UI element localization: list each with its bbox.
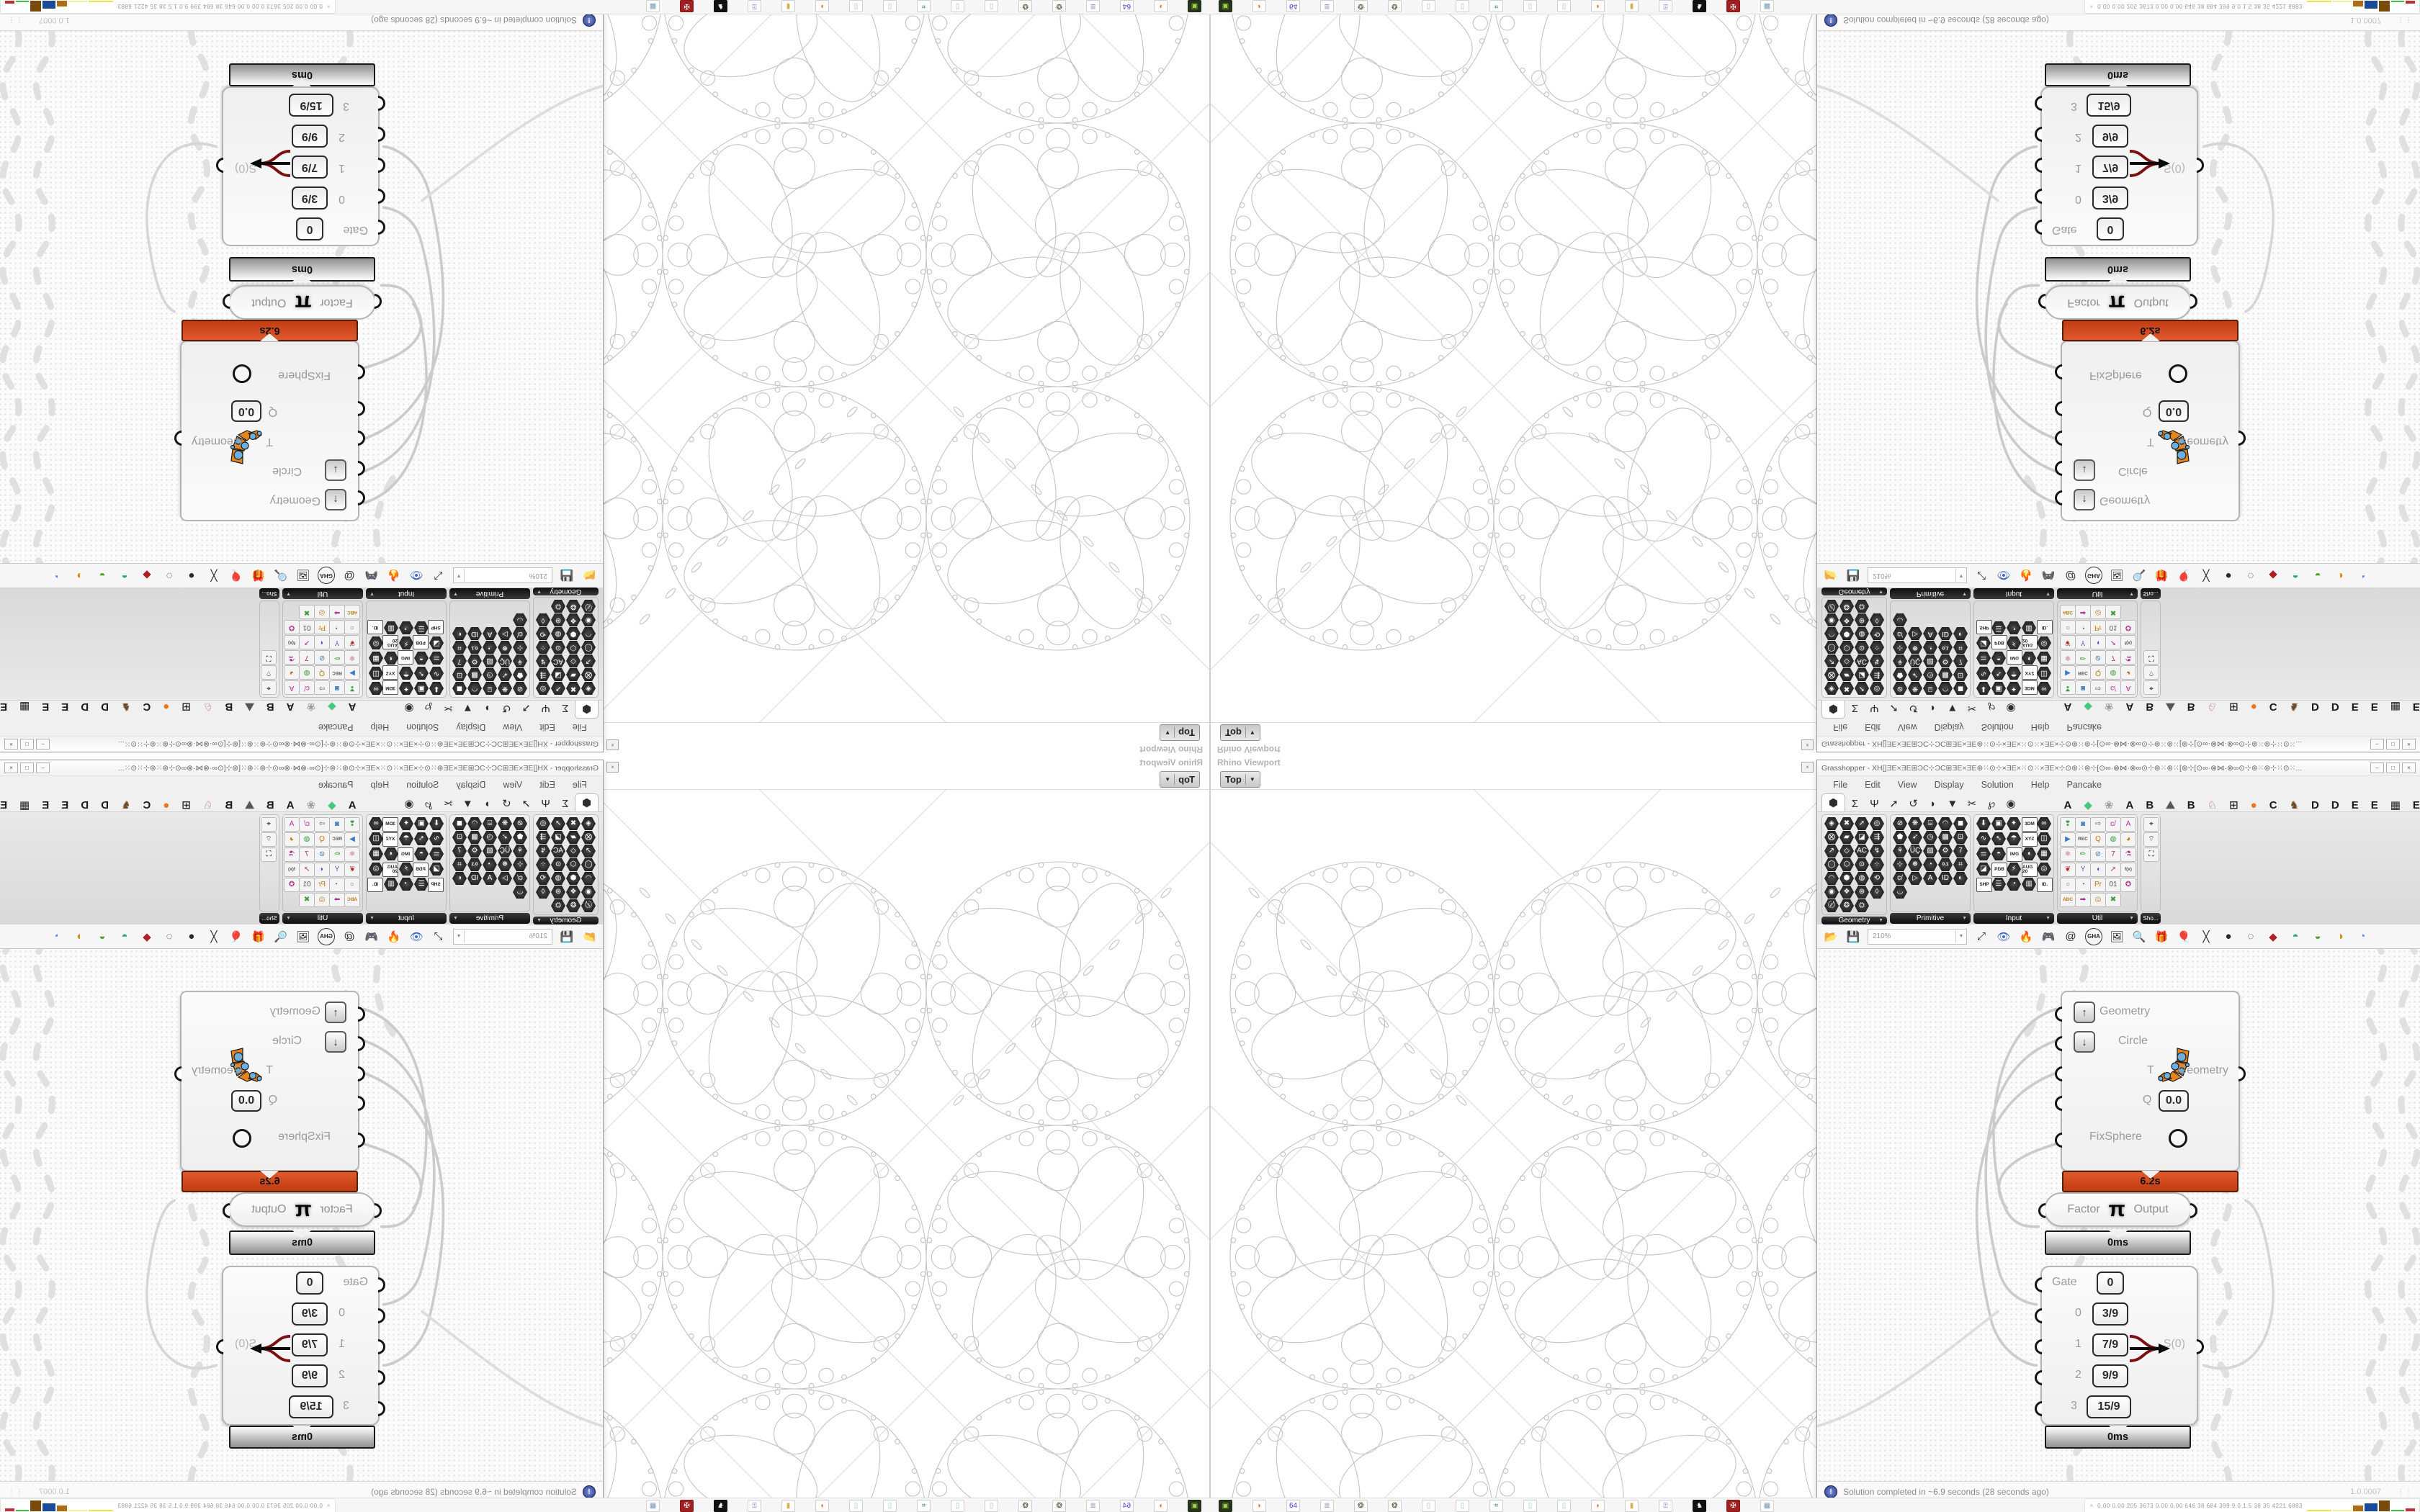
taskbar-document-icon[interactable]: ≣ — [1086, 1, 1100, 13]
category-tab[interactable]: B — [2146, 799, 2154, 811]
palette-icon[interactable]: ⌖ — [261, 680, 277, 695]
category-tab[interactable]: E — [42, 701, 49, 714]
frame-view-icon[interactable]: 🖼 — [2109, 929, 2125, 945]
menubar[interactable]: FileEditViewDisplaySolutionHelpPancake — [1817, 719, 2420, 736]
menu-item-pancake[interactable]: Pancake — [2066, 780, 2102, 790]
taskbar-bw-app-icon[interactable]: ♞ — [714, 1, 727, 13]
menu-item-solution[interactable]: Solution — [1981, 780, 2014, 790]
taskbar-floppy-64-icon[interactable]: 64 — [1120, 1, 1134, 13]
taskbar-monitor-icon[interactable]: ⌗ — [1489, 1, 1503, 13]
palette-icon[interactable]: ▷ — [1908, 627, 1922, 640]
category-tab[interactable]: ◆ — [328, 701, 336, 714]
palette-icon[interactable]: 〄 — [581, 600, 596, 613]
palette-icon[interactable]: ⚘ — [513, 654, 527, 667]
category-tab-icon[interactable]: ℘ — [1981, 701, 2001, 716]
category-tabbar[interactable]: ⬢ΣΨ➚↺◗▼✂℘◉A◆❀AB⛰B♘⊞●C♞DDEE▦E — [1817, 793, 2420, 811]
palette-icon[interactable]: ⚗ — [284, 847, 300, 862]
palette-icon[interactable]: ID. — [2037, 878, 2053, 892]
taskbar-red-badge-icon[interactable]: ✠ — [1726, 1, 1740, 13]
palette-icon[interactable]: A — [2120, 680, 2136, 695]
taskbar-floppy-64-icon[interactable]: 64 — [1286, 1500, 1300, 1512]
category-tab[interactable]: ▦ — [2390, 798, 2401, 811]
palette-icon[interactable]: ◎ — [2090, 893, 2106, 907]
palette-icon[interactable]: ▶ — [344, 665, 360, 680]
chevron-down-icon[interactable]: ▼ — [2045, 591, 2051, 596]
input-grip[interactable] — [2055, 431, 2070, 446]
palette-icon[interactable]: 7 — [1953, 845, 1968, 858]
menu-item-help[interactable]: Help — [2031, 780, 2050, 790]
palette-icon[interactable]: ➴ — [414, 832, 429, 845]
input-grip[interactable] — [350, 1036, 365, 1051]
palette-icon[interactable]: ◼ — [452, 682, 467, 695]
pi-component[interactable]: Factor π Output — [228, 1192, 376, 1227]
category-tab[interactable]: C — [143, 799, 151, 811]
menu-item-display[interactable]: Display — [456, 723, 485, 733]
taskbar-notepad-icon[interactable]: ▯ — [1523, 1, 1537, 13]
category-tab-icon[interactable]: Ψ — [536, 796, 555, 811]
save-floppy-icon[interactable]: 💾 — [559, 568, 575, 584]
palette-icon[interactable]: ⛶ — [2143, 847, 2159, 862]
palette-icon[interactable]: ⚛ — [344, 847, 360, 862]
palette-icon[interactable]: ▦ — [369, 652, 383, 665]
palette-icon[interactable]: ○ — [344, 620, 360, 634]
input-grip[interactable] — [2055, 1066, 2070, 1081]
category-tab-icon[interactable]: ➚ — [1884, 701, 1904, 716]
input-grip[interactable] — [2055, 1036, 2070, 1051]
palette-icon[interactable]: ◍ — [2105, 832, 2121, 847]
palette-icon[interactable]: ∞ — [369, 817, 383, 830]
palette-icon[interactable]: ⛭ — [551, 899, 565, 912]
palette-icon[interactable]: ⬡ — [566, 858, 581, 871]
palette-icon[interactable]: c/ — [2105, 817, 2121, 832]
palette-icon[interactable]: ◫ — [2037, 832, 2051, 845]
palette-icon[interactable]: SHP — [428, 620, 444, 634]
palette-icon[interactable]: ⚛ — [2060, 847, 2076, 862]
zoom-extents-icon[interactable]: ⤢ — [1973, 568, 1989, 584]
palette-icon[interactable]: ✪ — [2120, 620, 2136, 634]
maximize-button[interactable]: □ — [2386, 739, 2400, 750]
input-grip[interactable] — [2055, 461, 2070, 476]
input-grip[interactable] — [350, 1007, 365, 1022]
palette-icon[interactable]: ⬇ — [429, 817, 444, 830]
category-tab[interactable]: B — [266, 799, 274, 811]
minimize-button[interactable]: – — [2370, 739, 2384, 750]
lamp-icon[interactable]: 🎮 — [364, 568, 380, 584]
palette-icon[interactable]: ↗ — [1824, 845, 1839, 858]
palette-icon[interactable]: ◡ — [1893, 886, 1907, 899]
palette-icon[interactable]: 7 — [2105, 847, 2121, 862]
frame-view-icon[interactable]: 🖼 — [2109, 568, 2125, 584]
blob-orange-icon[interactable]: ◑ — [72, 568, 88, 584]
category-tab-icon[interactable]: ↺ — [1904, 701, 1923, 716]
chevron-down-icon[interactable]: ▼ — [369, 591, 375, 596]
palette-icon[interactable]: ⊹ — [1893, 858, 1907, 871]
taskbar-notepad-icon[interactable]: ▯ — [1557, 1, 1571, 13]
taskbar-tray[interactable]: ˄ 0.00 0.00 205 3673 0.00 0.00 646 38 68… — [0, 1498, 336, 1512]
taskbar-notepad-icon[interactable]: ▯ — [951, 1500, 964, 1512]
palette-icon[interactable]: ❅ — [1908, 641, 1922, 654]
input-grip[interactable] — [2035, 1308, 2050, 1323]
category-tab[interactable]: B — [2187, 799, 2195, 811]
output-grip[interactable] — [223, 1203, 238, 1218]
palette-icon[interactable]: 0.1 — [1938, 641, 1953, 654]
arrow-down-button[interactable]: ↓ — [2074, 459, 2095, 481]
palette-icon[interactable]: ◇ — [566, 845, 581, 858]
category-tab-icon[interactable]: ➚ — [516, 701, 536, 716]
palette-icon[interactable]: ❖ — [566, 613, 581, 626]
zoom-level-select[interactable]: 210%▼ — [1868, 929, 1967, 945]
input-grip[interactable] — [2055, 1007, 2070, 1022]
palette-icon[interactable]: ⌖ — [2143, 680, 2159, 695]
palette-icon[interactable]: ❋ — [498, 817, 512, 830]
palette-icon[interactable]: 0.1 — [467, 641, 482, 654]
taskbar[interactable]: ▣◗64≣❂❂▯▯⌗▯▯◗▮⍐♞✠▦ ˄ 0.00 0.00 205 3673 … — [1210, 0, 2420, 14]
taskbar-calculator-icon[interactable]: ▦ — [646, 1, 660, 13]
palette-icon[interactable]: ⊘ — [513, 682, 527, 695]
taskbar-terminal-icon[interactable]: ▣ — [1188, 1, 1201, 13]
fixsphere-toggle[interactable] — [2169, 1129, 2187, 1148]
arrow-down-button[interactable]: ↓ — [325, 1031, 346, 1053]
taskbar-terminal-icon[interactable]: ▣ — [1219, 1500, 1232, 1512]
grasshopper-window[interactable]: Grasshopper - XH[]ƎE×ƎE⊞ƆC⊹ƆC⊞ƎE×ƎE⊛⁙⊙⊹×… — [1816, 9, 2420, 752]
palette-icon[interactable]: ◙ — [2075, 817, 2091, 832]
palette-icon[interactable]: ◊ — [536, 886, 550, 899]
palette-icon[interactable]: ⚙ — [467, 654, 482, 667]
grasshopper-titlebar[interactable]: Grasshopper - XH[]ƎE×ƎE⊞ƆC⊹ƆC⊞ƎE×ƎE⊛⁙⊙⊹×… — [0, 736, 603, 752]
palette-icon[interactable]: ▥ — [384, 878, 398, 891]
palette-icon[interactable]: ⌸ — [1923, 817, 1937, 830]
chevron-down-icon[interactable]: ▼ — [1955, 570, 1966, 582]
palette-icon[interactable]: ❦ — [344, 635, 360, 649]
palette-icon[interactable]: ⚗ — [2120, 650, 2136, 665]
output-grip[interactable] — [216, 158, 231, 173]
palette-icon[interactable]: ⚌ — [1976, 652, 1991, 665]
taskbar-firefox-icon[interactable]: ◗ — [815, 1500, 829, 1512]
taskbar-monitor-icon[interactable]: ⌗ — [917, 1500, 931, 1512]
palette-icon[interactable]: ⨂ — [581, 668, 596, 681]
category-tab-icon[interactable]: Ψ — [1865, 701, 1884, 716]
palette-icon[interactable]: ▥ — [2022, 621, 2036, 634]
input-grip[interactable] — [2035, 127, 2050, 142]
palette-icon[interactable]: ◖ — [384, 847, 398, 860]
palette-icon[interactable]: ❦ — [344, 863, 360, 877]
palette-icon[interactable]: ⊘ — [2090, 650, 2106, 665]
paint-flame-icon[interactable]: 🔥 — [2018, 568, 2034, 584]
palette-icon[interactable]: ◐ — [1953, 627, 1968, 640]
taskbar-dark-orb-icon[interactable]: ❂ — [1388, 1, 1402, 13]
palette-icon[interactable]: ⬡ — [1839, 858, 1854, 871]
palette-icon[interactable]: ◖ — [314, 635, 330, 649]
value-box[interactable]: 15/9 — [289, 94, 333, 117]
output-grip[interactable] — [174, 1066, 189, 1081]
palette-icon[interactable]: AUG 20 — [382, 635, 398, 649]
input-grip[interactable] — [350, 461, 365, 476]
component-palette[interactable]: ◈✖➚◎⨂▰◪⇶↗◇AC↯◯⬡⊙⁘◠⬢◍⟲◉❖⊛◊〄❂⛭Geometry▼⊘❋⌸… — [0, 811, 603, 924]
value-box[interactable]: 9/9 — [292, 125, 328, 148]
chevron-down-icon[interactable]: ▼ — [1165, 776, 1170, 783]
palette-icon[interactable]: ✖ — [566, 817, 581, 830]
palette-icon[interactable]: ⬢ — [1839, 627, 1854, 640]
palette-icon[interactable]: ◐ — [452, 872, 467, 885]
close-button[interactable]: × — [2402, 739, 2416, 750]
tray-expand-icon[interactable]: ˄ — [2089, 1503, 2093, 1508]
palette-icon[interactable]: ◪ — [429, 863, 444, 876]
palette-icon[interactable]: ↯ — [1870, 845, 1884, 858]
palette-icon[interactable]: ❋ — [1908, 817, 1922, 830]
menu-item-file[interactable]: File — [1833, 723, 1847, 733]
taskbar-monitor-icon[interactable]: ⌗ — [1489, 1500, 1503, 1512]
search-s-icon[interactable]: 🔍 — [273, 568, 289, 584]
palette-icon[interactable]: ❋ — [498, 682, 512, 695]
palette-icon[interactable]: ▨ — [483, 845, 497, 858]
save-floppy-icon[interactable]: 💾 — [1845, 568, 1861, 584]
open-folder-icon[interactable]: 📂 — [1823, 568, 1839, 584]
palette-icon[interactable]: ▶ — [2060, 832, 2076, 847]
palette-icon[interactable]: ✦ — [399, 682, 413, 695]
palette-icon[interactable]: ∿ — [429, 832, 444, 845]
palette-group-label[interactable]: Geometry▼ — [1821, 917, 1887, 924]
palette-icon[interactable]: ⚗ — [2120, 847, 2136, 862]
close-button[interactable]: × — [4, 739, 18, 750]
category-tab-icon[interactable]: Σ — [555, 796, 575, 811]
palette-icon[interactable]: ✦ — [2007, 817, 2021, 830]
menu-item-edit[interactable]: Edit — [1865, 723, 1881, 733]
palette-icon[interactable]: ID — [467, 627, 482, 640]
arrow-up-button[interactable]: ↑ — [325, 489, 346, 510]
palette-icon[interactable]: Y — [2075, 635, 2091, 649]
palette-icon[interactable]: ◠ — [467, 682, 482, 695]
arrow-down-button[interactable]: ↓ — [2074, 1031, 2095, 1053]
taskbar-firefox-icon[interactable]: ◗ — [1154, 1, 1168, 13]
palette-icon[interactable]: ◔ — [2007, 878, 2021, 891]
palette-icon[interactable]: ▩ — [467, 668, 482, 681]
palette-icon[interactable]: ▰ — [1839, 668, 1854, 681]
palette-icon[interactable]: ÜÇ — [1908, 654, 1922, 667]
palette-icon[interactable]: A — [284, 680, 300, 695]
palette-group-label[interactable]: Primitive▼ — [1890, 588, 1971, 599]
taskbar-firefox-icon[interactable]: ◗ — [815, 1, 829, 13]
chevron-down-icon[interactable]: ▼ — [453, 591, 458, 596]
category-tab[interactable]: ❀ — [307, 798, 316, 811]
palette-icon[interactable]: ❅ — [498, 641, 512, 654]
palette-icon[interactable]: ⁘ — [536, 858, 550, 871]
palette-icon[interactable]: ➡ — [2075, 893, 2091, 907]
palette-icon[interactable]: ⁘ — [1870, 858, 1884, 871]
palette-icon[interactable]: ◠ — [467, 817, 482, 830]
palette-icon[interactable]: IMG — [398, 847, 413, 862]
taskbar-floppy-64-icon[interactable]: 64 — [1286, 1, 1300, 13]
palette-icon[interactable]: ⬢ — [1839, 872, 1854, 885]
palette-icon[interactable]: ◪ — [1976, 863, 1991, 876]
palette-icon[interactable]: ✪ — [284, 878, 300, 892]
blob-teal-icon[interactable]: ◓ — [2287, 568, 2303, 584]
palette-icon[interactable]: ÜÇ — [498, 845, 512, 858]
pi-component[interactable]: Factor π Output — [228, 285, 376, 320]
palette-group-label[interactable]: Geometry▼ — [533, 917, 599, 924]
palette-icon[interactable]: ▩ — [1938, 831, 1953, 844]
palette-icon[interactable]: ❂ — [1839, 899, 1854, 912]
palette-icon[interactable]: AUG 20 — [2022, 635, 2038, 649]
canvas[interactable]: ↑ ↓ Geometry Circle T Q FixSphere 0.0 — [1817, 31, 2420, 563]
palette-icon[interactable]: 3DM — [2022, 680, 2038, 695]
palette-icon[interactable]: f(x) — [2120, 635, 2136, 649]
paint-flame-icon[interactable]: 🔥 — [386, 929, 402, 945]
palette-icon[interactable]: ✏ — [2075, 847, 2091, 862]
category-tab-icon[interactable]: Ψ — [1865, 796, 1884, 811]
category-tab-icon[interactable]: Σ — [555, 701, 575, 716]
taskbar-notepad-icon[interactable]: ▯ — [883, 1500, 897, 1512]
taskbar-computer-icon[interactable]: ⍐ — [1659, 1, 1672, 13]
category-tab[interactable]: ● — [2251, 701, 2257, 714]
taskbar-tray[interactable]: ˄ 0.00 0.00 205 3673 0.00 0.00 646 38 68… — [2084, 0, 2420, 14]
palette-icon[interactable]: ◔ — [2075, 878, 2091, 892]
palette-icon[interactable]: ◼ — [1953, 682, 1968, 695]
palette-icon[interactable]: ∿ — [1976, 667, 1991, 680]
palette-icon[interactable]: ➶ — [1908, 668, 1922, 681]
palette-icon[interactable]: ☂ — [2007, 667, 2021, 680]
palette-icon[interactable]: ⊹ — [513, 641, 527, 654]
maximize-button[interactable]: □ — [20, 739, 34, 750]
menu-item-pancake[interactable]: Pancake — [2066, 723, 2102, 733]
canvas-toolbar[interactable]: 📂💾210%▼⤢👁🔥🎮@GHA🖼🔍🎁🎈╳●◌◆◓◒◑◔ — [0, 924, 603, 949]
category-tab[interactable]: E — [2371, 799, 2378, 811]
palette-icon[interactable]: A — [1923, 627, 1937, 640]
palette-icon[interactable]: ◈ — [1824, 817, 1839, 830]
palette-icon[interactable]: ◉ — [1824, 886, 1839, 899]
output-grip[interactable] — [2182, 294, 2197, 309]
category-tab-icon[interactable]: ℘ — [1981, 796, 2001, 811]
input-grip[interactable] — [2035, 158, 2050, 173]
palette-icon[interactable]: AC — [551, 654, 565, 667]
palette-group-label[interactable]: Primitive▼ — [449, 588, 530, 599]
palette-icon[interactable]: ◪ — [551, 668, 565, 681]
category-tab-icon[interactable]: ✂ — [439, 796, 458, 811]
canvas[interactable]: ↑ ↓ Geometry Circle T Q FixSphere 0.0 — [0, 949, 603, 1481]
palette-group-label[interactable]: Util▼ — [2057, 588, 2138, 599]
palette-icon[interactable]: ∿ — [1976, 832, 1991, 845]
menu-item-display[interactable]: Display — [456, 780, 485, 790]
zoom-level-select[interactable]: 210%▼ — [453, 929, 552, 945]
palette-icon[interactable]: A — [483, 872, 497, 885]
palette-icon[interactable]: Q — [314, 832, 330, 847]
taskbar-bw-app-icon[interactable]: ♞ — [1693, 1500, 1706, 1512]
palette-icon[interactable]: f(x) — [284, 863, 300, 877]
menu-item-display[interactable]: Display — [1935, 780, 1964, 790]
taskbar-document-icon[interactable]: ≣ — [1320, 1, 1334, 13]
chevron-down-icon[interactable]: ▼ — [454, 930, 465, 943]
palette-icon[interactable]: ◓ — [1991, 652, 2006, 665]
wire-cross-icon[interactable]: ╳ — [2198, 929, 2214, 945]
palette-icon[interactable]: ⚡ — [399, 863, 413, 876]
input-grip[interactable] — [370, 1370, 385, 1385]
category-tab[interactable]: D — [101, 701, 109, 714]
palette-icon[interactable]: ⊡ — [452, 668, 467, 681]
palette-icon[interactable]: AC — [1855, 845, 1869, 858]
palette-icon[interactable]: ◊ — [1870, 886, 1884, 899]
category-tab[interactable]: ▦ — [19, 798, 30, 811]
component-palette[interactable]: ◈✖➚◎⨂▰◪⇶↗◇AC↯◯⬡⊙⁘◠⬢◍⟲◉❖⊛◊〄❂⛭Geometry▼⊘❋⌸… — [1817, 588, 2420, 701]
paint-flame-icon[interactable]: 🔥 — [2018, 929, 2034, 945]
palette-group-label[interactable]: Primitive▼ — [449, 913, 530, 924]
palette-icon[interactable]: ◠ — [581, 627, 596, 640]
zoom-extents-icon[interactable]: ⤢ — [1973, 929, 1989, 945]
input-grip[interactable] — [2035, 1339, 2050, 1354]
minimize-button[interactable]: – — [36, 762, 50, 773]
value-box[interactable]: 7/9 — [292, 156, 328, 179]
value-box[interactable]: 9/9 — [2092, 125, 2128, 148]
category-tab-icon[interactable]: Ψ — [536, 701, 555, 716]
palette-icon[interactable]: ⇶ — [536, 831, 550, 844]
palette-icon[interactable]: ☂ — [399, 832, 413, 845]
taskbar-terminal-icon[interactable]: ▣ — [1219, 1, 1232, 13]
palette-icon[interactable]: ◓ — [1991, 847, 2006, 860]
zoom-extents-icon[interactable]: ⤢ — [431, 568, 447, 584]
input-grip[interactable] — [2055, 490, 2070, 505]
palette-icon[interactable]: ⌸ — [483, 817, 497, 830]
chevron-down-icon[interactable]: ▼ — [1250, 729, 1255, 736]
palette-icon[interactable]: ◠ — [1938, 682, 1953, 695]
gem-red-icon[interactable]: ◆ — [2265, 568, 2281, 584]
gem-red-icon[interactable]: ◆ — [139, 568, 155, 584]
taskbar-notepad-icon[interactable]: ▯ — [849, 1, 863, 13]
palette-icon[interactable]: ◎ — [369, 863, 383, 876]
palette-icon[interactable]: ◔ — [399, 621, 413, 634]
value-box[interactable]: 15/9 — [289, 1395, 333, 1418]
palette-icon[interactable]: Y — [329, 635, 345, 649]
palette-icon[interactable]: ▦ — [369, 847, 383, 860]
palette-icon[interactable]: ◔ — [2075, 620, 2091, 634]
category-tab[interactable]: A — [349, 701, 357, 714]
category-tab-icon[interactable]: ▼ — [458, 796, 478, 811]
taskbar-dark-orb-icon[interactable]: ❂ — [1018, 1500, 1032, 1512]
palette-icon[interactable]: ⚌ — [1976, 847, 1991, 860]
category-tabbar[interactable]: ⬢ΣΨ➚↺◗▼✂℘◉A◆❀AB⛰B♘⊞●C♞DDEE▦E — [0, 793, 603, 811]
palette-icon[interactable]: 01 — [2105, 878, 2121, 892]
palette-icon[interactable]: ◔ — [329, 620, 345, 634]
category-tab[interactable]: ❀ — [2105, 798, 2114, 811]
taskbar-folder-icon[interactable]: ▮ — [1625, 1, 1639, 13]
palette-icon[interactable]: ❂ — [566, 899, 581, 912]
palette-icon[interactable]: ⊙ — [1855, 641, 1869, 654]
category-tab[interactable]: ♞ — [2290, 798, 2299, 811]
taskbar-computer-icon[interactable]: ⍐ — [1659, 1500, 1672, 1512]
palette-icon[interactable]: ◕ — [284, 832, 300, 847]
palette-icon[interactable]: ▥ — [384, 621, 398, 634]
menu-item-help[interactable]: Help — [371, 723, 390, 733]
category-tab[interactable]: D — [2331, 799, 2339, 811]
viewport-tab-top[interactable]: Top ▼ — [1160, 771, 1200, 788]
zoom-level-select[interactable]: 210%▼ — [1868, 568, 1967, 584]
palette-icon[interactable]: ✦ — [2007, 682, 2021, 695]
taskbar-notepad-icon[interactable]: ▯ — [1456, 1, 1469, 13]
palette-icon[interactable]: ◼ — [452, 817, 467, 830]
taskbar-tray[interactable]: ˄ 0.00 0.00 205 3673 0.00 0.00 646 38 68… — [0, 0, 336, 14]
taskbar-notepad-icon[interactable]: ▯ — [1422, 1500, 1435, 1512]
input-grip[interactable] — [2038, 1203, 2053, 1218]
taskbar-computer-icon[interactable]: ⍐ — [748, 1500, 761, 1512]
palette-icon[interactable]: ☰ — [414, 878, 429, 891]
balloon-icon[interactable]: 🎈 — [228, 929, 244, 945]
palette-icon[interactable]: c/ — [2105, 680, 2121, 695]
taskbar-dark-orb-icon[interactable]: ❂ — [1052, 1500, 1066, 1512]
rhino-viewport[interactable]: Rhino Viewport Top ▼ × — [1210, 756, 1819, 1498]
palette-icon[interactable]: 7 — [452, 654, 467, 667]
category-tab[interactable]: ▦ — [2390, 701, 2401, 714]
palette-icon[interactable]: ➡ — [2075, 605, 2091, 619]
palette-icon[interactable]: ❣ — [2060, 680, 2076, 695]
palette-icon[interactable]: ✖ — [2105, 893, 2121, 907]
palette-icon[interactable]: ID — [467, 872, 482, 885]
